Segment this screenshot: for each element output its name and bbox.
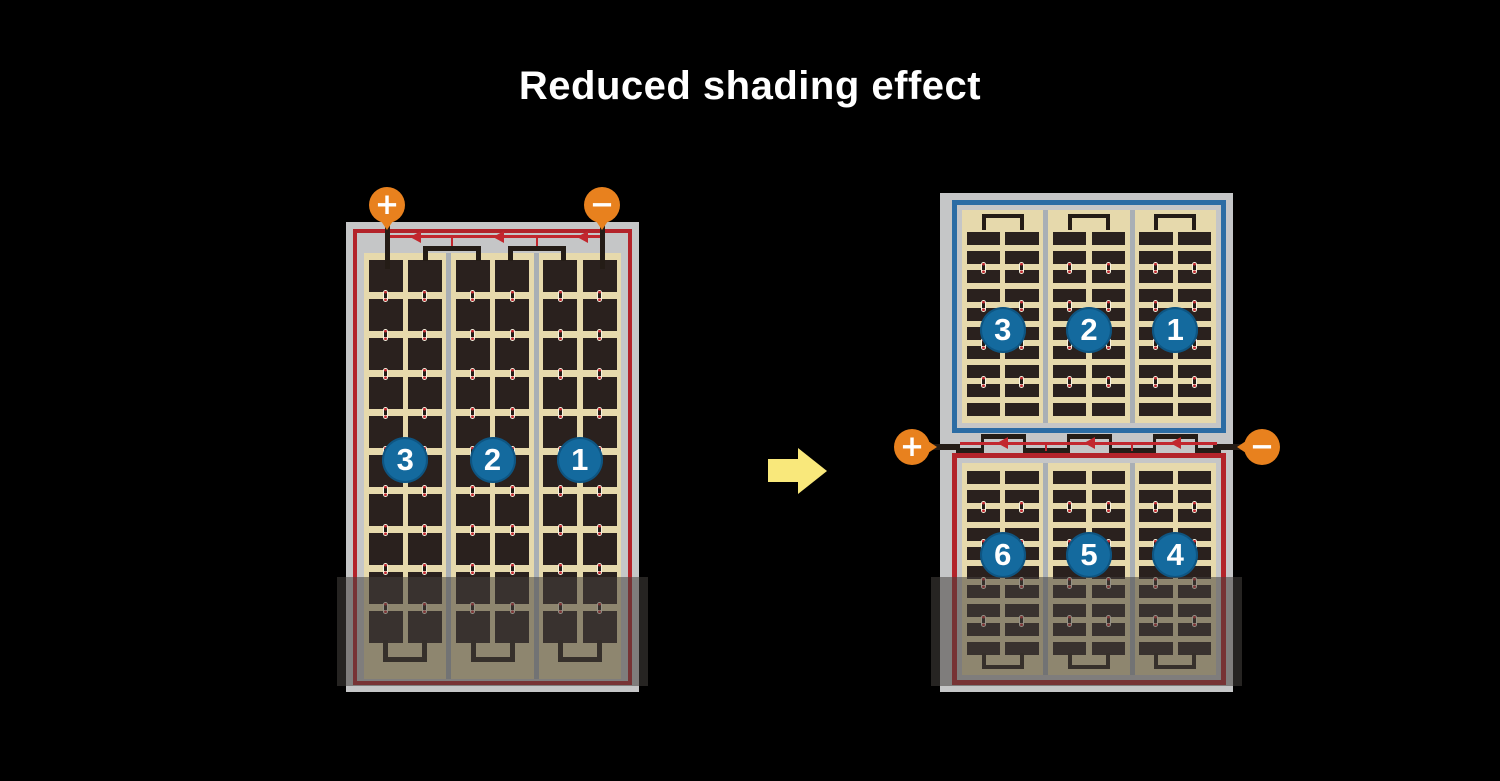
solar-cell: [456, 338, 490, 370]
string-number-badge: 3: [382, 437, 428, 483]
cell-connector: [422, 485, 427, 497]
solar-cell: [369, 377, 403, 409]
bypass-diode-icon: [1084, 437, 1095, 449]
cell-connector: [558, 368, 563, 380]
cell-connector: [558, 563, 563, 575]
cell-connector: [470, 524, 475, 536]
half-cut-cell: [1005, 403, 1039, 416]
half-cut-cell: [1139, 471, 1173, 484]
cell-connector: [1153, 262, 1158, 274]
cell-connector: [558, 485, 563, 497]
cell-connector: [1106, 376, 1111, 388]
solar-cell: [543, 338, 577, 370]
solar-cell: [456, 533, 490, 565]
half-cut-cell: [1053, 471, 1087, 484]
cell-connector: [470, 485, 475, 497]
bypass-diode-icon: [410, 231, 421, 243]
arrow-head: [798, 448, 827, 494]
bus-tap-wire: [1131, 443, 1133, 451]
cell-connector: [1153, 501, 1158, 513]
cell-connector: [510, 524, 515, 536]
bypass-diode-icon: [493, 231, 504, 243]
solar-cell: [408, 338, 442, 370]
solar-cell: [543, 299, 577, 331]
cell-connector: [597, 524, 602, 536]
solar-cell: [495, 338, 529, 370]
cell-connector: [558, 524, 563, 536]
page-title: Reduced shading effect: [0, 64, 1500, 109]
solar-cell: [583, 533, 617, 565]
solar-cell: [543, 533, 577, 565]
cell-connector: [1019, 376, 1024, 388]
string-number-badge: 5: [1066, 532, 1112, 578]
cell-connector: [422, 407, 427, 419]
cell-connector: [510, 485, 515, 497]
string-number-badge: 6: [980, 532, 1026, 578]
cell-connector: [1067, 300, 1072, 312]
cell-connector: [1019, 501, 1024, 513]
cell-connector: [597, 407, 602, 419]
half-cut-cell: [967, 403, 1001, 416]
string-top-connector: [508, 246, 566, 261]
solar-cell: [583, 299, 617, 331]
cell-connector: [1019, 262, 1024, 274]
solar-cell: [495, 377, 529, 409]
cell-connector: [383, 329, 388, 341]
string-number-badge: 1: [1152, 307, 1198, 353]
arrow-body: [768, 459, 799, 482]
cell-connector: [1019, 300, 1024, 312]
cell-connector: [1106, 501, 1111, 513]
cell-connector: [470, 368, 475, 380]
cell-connector: [981, 376, 986, 388]
string-number-badge: 3: [980, 307, 1026, 353]
cell-connector: [1192, 501, 1197, 513]
cell-connector: [597, 290, 602, 302]
solar-cell: [408, 299, 442, 331]
bus-tap-wire: [1045, 443, 1047, 451]
solar-cell: [408, 533, 442, 565]
solar-cell: [583, 494, 617, 526]
half-cut-cell: [1178, 471, 1212, 484]
solar-cell: [495, 260, 529, 292]
cell-connector: [981, 501, 986, 513]
half-cut-cell: [1092, 471, 1126, 484]
cell-connector: [558, 329, 563, 341]
solar-cell: [369, 494, 403, 526]
solar-cell: [456, 494, 490, 526]
cell-connector: [510, 329, 515, 341]
half-cut-cell: [967, 471, 1001, 484]
cell-connector: [1067, 501, 1072, 513]
solar-cell: [456, 377, 490, 409]
cell-connector: [1067, 376, 1072, 388]
solar-cell: [495, 533, 529, 565]
half-cut-cell: [1005, 232, 1039, 245]
solar-cell: [456, 299, 490, 331]
cell-connector: [597, 563, 602, 575]
cell-divider: [1130, 210, 1135, 423]
cell-connector: [383, 524, 388, 536]
solar-cell: [583, 377, 617, 409]
cell-connector: [1192, 376, 1197, 388]
cell-connector: [470, 407, 475, 419]
cell-connector: [558, 407, 563, 419]
cell-connector: [510, 563, 515, 575]
reduced-shading-diagram: Reduced shading effect 321+− 321654+−: [0, 0, 1500, 781]
half-cut-cell: [1053, 403, 1087, 416]
half-cut-cell: [1053, 232, 1087, 245]
top-half-cell-area: 321: [962, 210, 1216, 423]
cell-connector: [597, 329, 602, 341]
positive-terminal: +: [369, 187, 405, 223]
half-cut-cell: [1178, 403, 1212, 416]
cell-connector: [422, 563, 427, 575]
half-cut-cell: [967, 232, 1001, 245]
bypass-diode-icon: [997, 437, 1008, 449]
cell-connector: [383, 368, 388, 380]
half-cut-cell: [1139, 403, 1173, 416]
cell-connector: [383, 407, 388, 419]
cell-connector: [383, 563, 388, 575]
junction-busbar: [956, 448, 982, 453]
positive-terminal: +: [894, 429, 930, 465]
solar-cell: [369, 533, 403, 565]
string-top-connector: [423, 246, 481, 261]
negative-terminal: −: [584, 187, 620, 223]
solar-cell: [408, 260, 442, 292]
cell-connector: [510, 368, 515, 380]
negative-terminal: −: [1244, 429, 1280, 465]
string-number-badge: 1: [557, 437, 603, 483]
string-top-connector: [1068, 214, 1110, 230]
string-number-badge: 2: [470, 437, 516, 483]
half-cut-cell: [1092, 403, 1126, 416]
cell-connector: [981, 262, 986, 274]
solar-cell: [369, 338, 403, 370]
half-cut-cell: [1005, 471, 1039, 484]
solar-cell: [408, 377, 442, 409]
solar-cell: [369, 299, 403, 331]
cell-divider: [1043, 210, 1048, 423]
solar-cell: [495, 299, 529, 331]
cell-connector: [981, 300, 986, 312]
solar-cell: [495, 494, 529, 526]
cell-connector: [470, 329, 475, 341]
bus-tap-wire: [451, 237, 453, 246]
shading-overlay-left: [337, 577, 648, 686]
shading-overlay-right: [931, 577, 1242, 686]
cell-connector: [1106, 300, 1111, 312]
solar-cell: [543, 494, 577, 526]
cell-connector: [1106, 262, 1111, 274]
cell-connector: [510, 407, 515, 419]
cell-connector: [1192, 262, 1197, 274]
bus-tap-wire: [536, 237, 538, 246]
half-cut-cell: [1178, 232, 1212, 245]
half-cut-cell: [1139, 232, 1173, 245]
half-cut-cell: [1092, 232, 1126, 245]
solar-cell: [408, 494, 442, 526]
cell-connector: [383, 290, 388, 302]
bypass-diode-icon: [577, 231, 588, 243]
solar-cell: [456, 260, 490, 292]
cell-connector: [597, 368, 602, 380]
bypass-diode-icon: [1170, 437, 1181, 449]
cell-connector: [1153, 300, 1158, 312]
solar-cell: [583, 338, 617, 370]
cell-connector: [558, 290, 563, 302]
solar-cell: [543, 260, 577, 292]
string-top-connector: [1154, 214, 1196, 230]
junction-busbar: [1196, 448, 1221, 453]
cell-connector: [1153, 376, 1158, 388]
cell-connector: [422, 329, 427, 341]
cell-connector: [1192, 300, 1197, 312]
cell-connector: [422, 290, 427, 302]
cell-connector: [510, 290, 515, 302]
string-top-connector: [982, 214, 1024, 230]
cell-connector: [597, 485, 602, 497]
solar-cell: [543, 377, 577, 409]
cell-connector: [470, 563, 475, 575]
transition-arrow-icon: [768, 448, 828, 494]
cell-connector: [383, 485, 388, 497]
string-number-badge: 2: [1066, 307, 1112, 353]
cell-connector: [422, 524, 427, 536]
string-number-badge: 4: [1152, 532, 1198, 578]
cell-connector: [470, 290, 475, 302]
cell-connector: [422, 368, 427, 380]
cell-connector: [1067, 262, 1072, 274]
